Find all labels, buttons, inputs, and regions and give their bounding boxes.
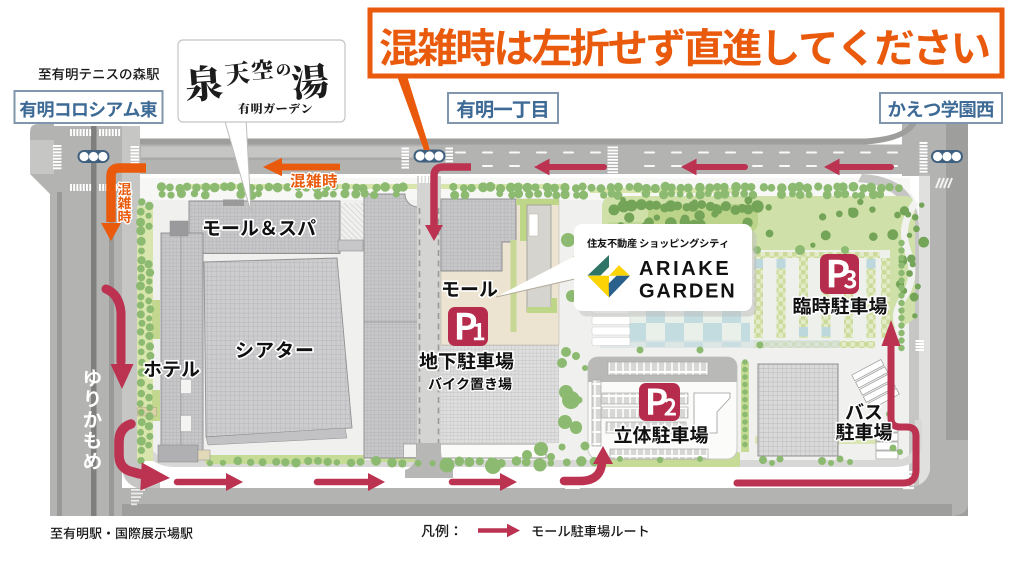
svg-text:ARIAKE: ARIAKE bbox=[639, 258, 731, 280]
svg-text:GARDEN: GARDEN bbox=[639, 281, 736, 303]
